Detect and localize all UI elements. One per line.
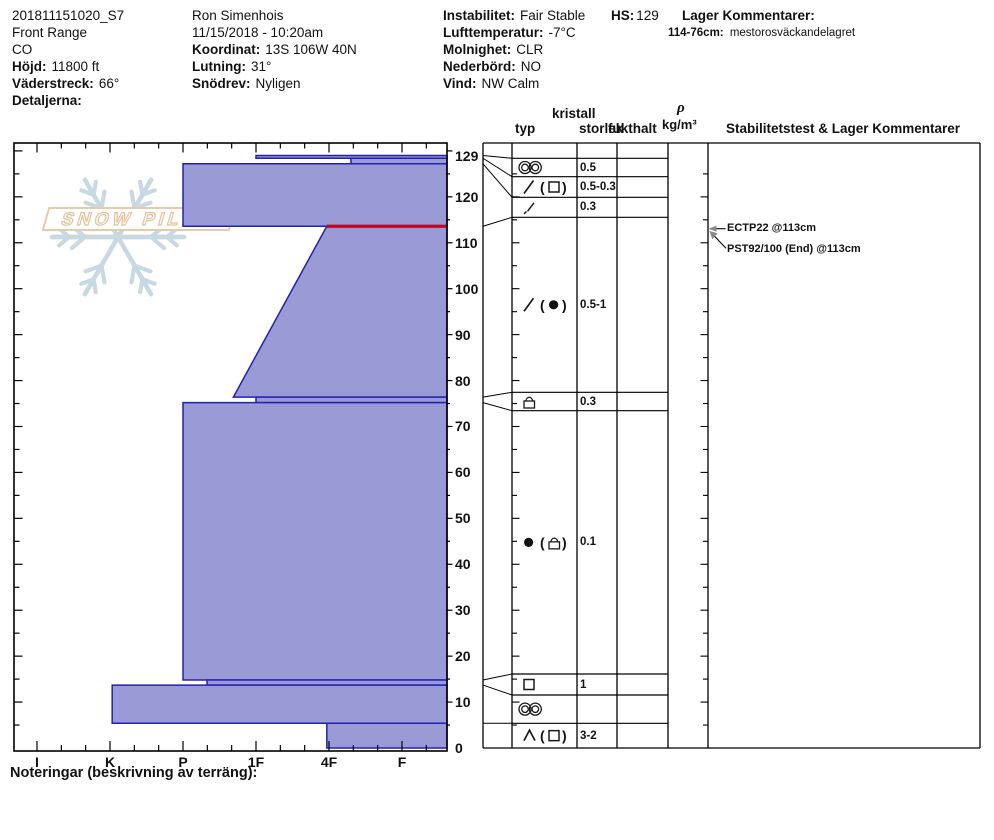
snow-layer-bar xyxy=(327,723,447,748)
snow-layer-bar xyxy=(351,158,447,164)
ect-arrow-icon xyxy=(709,226,717,232)
rings-crystal-icon xyxy=(519,162,541,174)
snow-layer-bar xyxy=(183,164,447,226)
snow-layer-bar xyxy=(207,680,447,685)
square-crystal-icon xyxy=(549,731,559,741)
slash-small-crystal-icon xyxy=(524,203,534,214)
slash-crystal-icon xyxy=(524,298,534,311)
square-crystal-icon xyxy=(549,182,559,192)
paren-glyph: ) xyxy=(562,728,567,744)
snow-layer-bar xyxy=(233,226,447,397)
snowpilot-report: 201811151020_S7 Front Range CO Höjd:1180… xyxy=(0,0,994,840)
paren-glyph: ( xyxy=(540,179,545,195)
rings-crystal-icon xyxy=(519,703,541,715)
paren-glyph: ( xyxy=(540,728,545,744)
paren-glyph: ) xyxy=(562,179,567,195)
paren-glyph: ( xyxy=(540,534,545,550)
square-crystal-icon xyxy=(524,680,534,690)
snow-layer-bar xyxy=(112,685,447,723)
hardness-profile-chart: ()()()() xyxy=(0,0,994,840)
snow-layer-bar xyxy=(256,397,447,403)
dot-crystal-icon xyxy=(549,300,558,309)
caret-crystal-icon xyxy=(524,730,535,741)
snow-layer-bar xyxy=(183,403,447,680)
paren-glyph: ) xyxy=(562,534,567,550)
paren-glyph: ( xyxy=(540,297,545,313)
paren-glyph: ) xyxy=(562,297,567,313)
crust-crystal-icon xyxy=(524,397,535,408)
crust-crystal-icon xyxy=(549,538,560,549)
dot-crystal-icon xyxy=(524,538,533,547)
slash-crystal-icon xyxy=(524,181,534,194)
